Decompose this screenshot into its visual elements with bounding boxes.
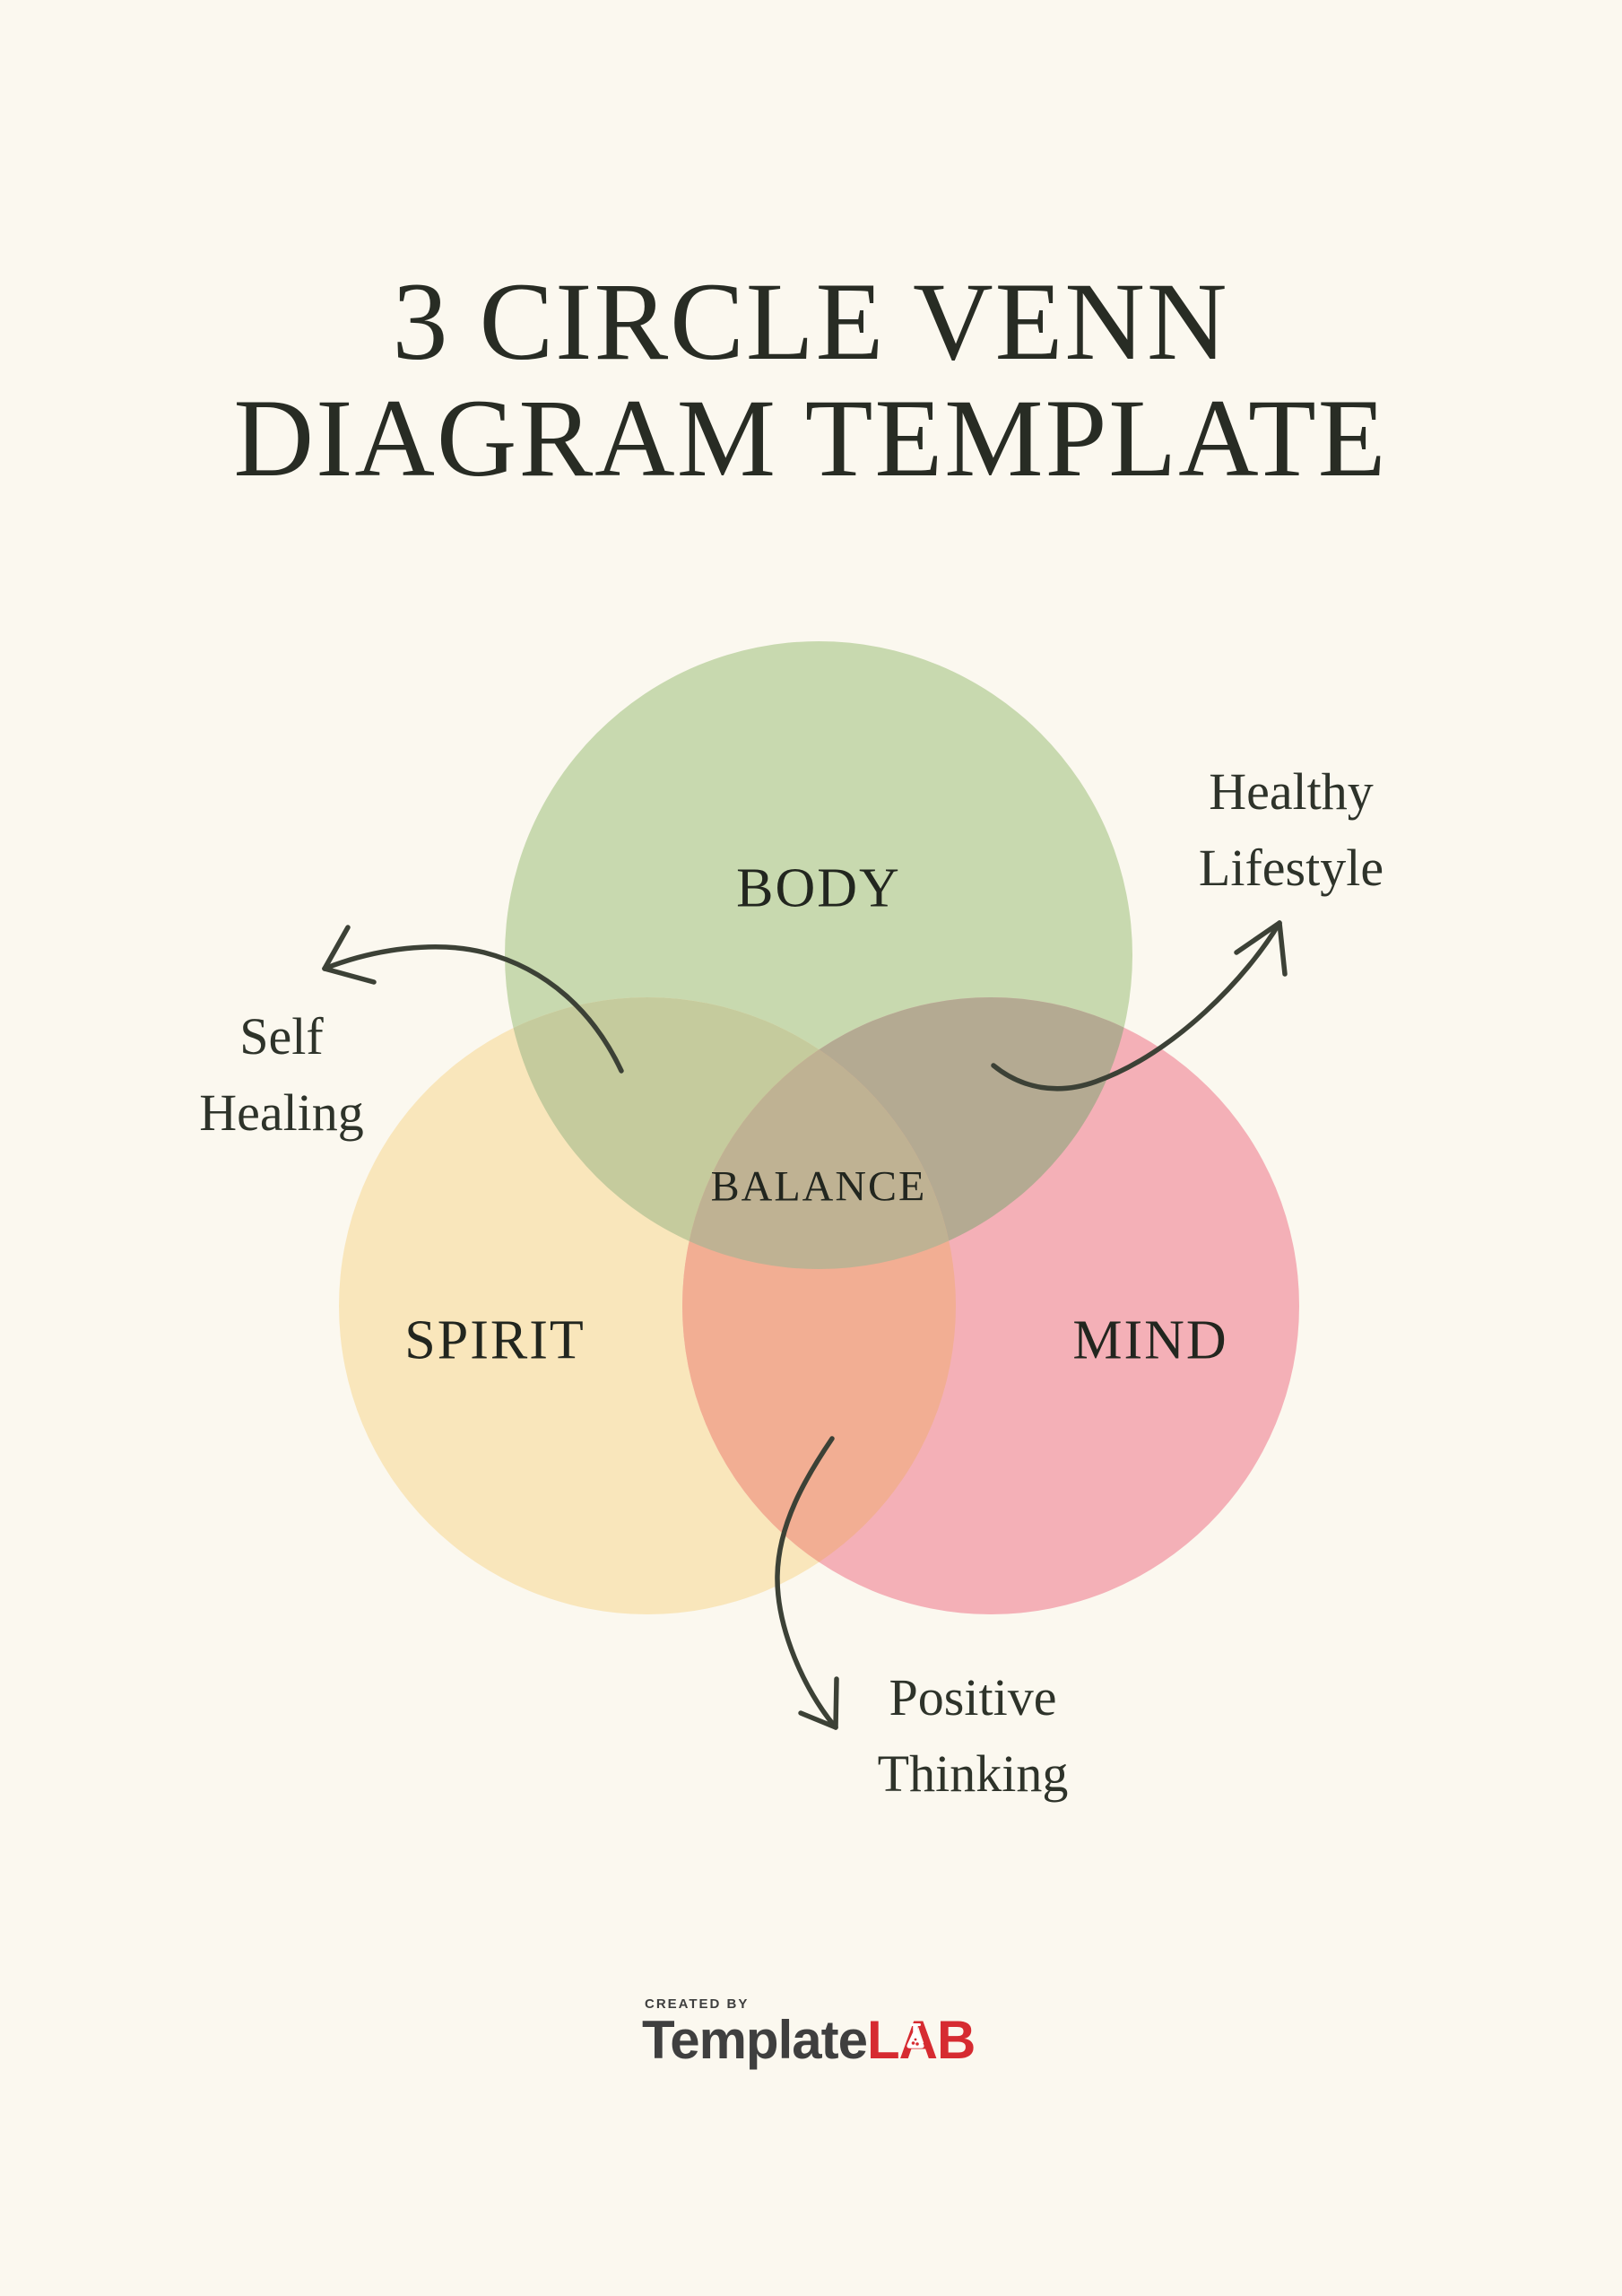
brand-wordmark: TemplateLAB xyxy=(642,2013,975,2068)
poster: 3 CIRCLE VENN DIAGRAM TEMPLATE BODY SPIR… xyxy=(0,0,1622,2296)
annotation-healthy-lifestyle-line1: Healthy xyxy=(1199,753,1383,830)
circle-label-body: BODY xyxy=(736,857,901,921)
page-title-line1: 3 CIRCLE VENN xyxy=(234,264,1388,380)
annotation-positive-thinking-line1: Positive xyxy=(878,1659,1069,1735)
brand-logo: CREATED BY TemplateLAB xyxy=(642,1996,975,2068)
page-title: 3 CIRCLE VENN DIAGRAM TEMPLATE xyxy=(234,264,1388,497)
circle-label-spirit: SPIRIT xyxy=(404,1309,585,1373)
annotation-positive-thinking: Positive Thinking xyxy=(878,1659,1069,1812)
center-label-balance: BALANCE xyxy=(711,1162,927,1212)
annotation-positive-thinking-line2: Thinking xyxy=(878,1735,1069,1812)
annotation-self-healing: Self Healing xyxy=(199,998,364,1151)
page-title-line2: DIAGRAM TEMPLATE xyxy=(234,380,1388,497)
annotation-healthy-lifestyle: Healthy Lifestyle xyxy=(1199,753,1383,906)
circle-label-mind: MIND xyxy=(1072,1309,1227,1373)
brand-template-text: Template xyxy=(642,2010,867,2070)
annotation-self-healing-line1: Self xyxy=(199,998,364,1074)
flask-icon xyxy=(904,2021,927,2051)
annotation-healthy-lifestyle-line2: Lifestyle xyxy=(1199,830,1383,906)
annotation-self-healing-line2: Healing xyxy=(199,1074,364,1151)
